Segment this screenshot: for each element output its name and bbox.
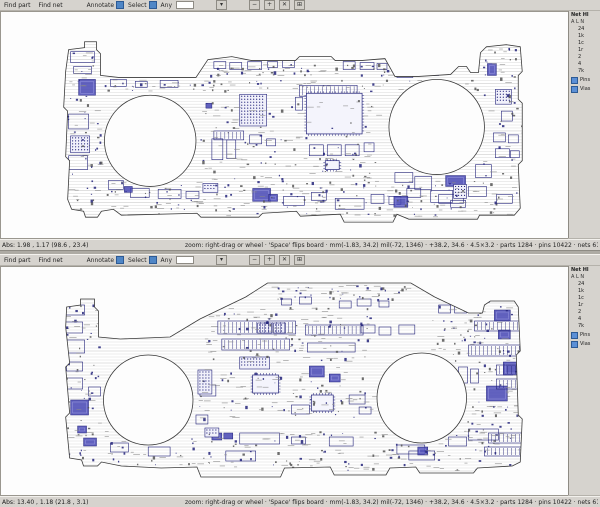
net-panel: Net Hl A L N 24 1k 1c 1r 2 4 7k Pins Via… (568, 11, 600, 239)
net-count: 24 (571, 26, 599, 33)
net-count: 1c (571, 40, 599, 47)
pins-label: Pins (580, 332, 590, 339)
pins-checkbox[interactable] (571, 77, 578, 84)
pins-toggle-row[interactable]: Pins (571, 77, 599, 84)
pins-toggle-row[interactable]: Pins (571, 332, 599, 339)
net-count: 2 (571, 54, 599, 61)
annotate-checkbox[interactable] (116, 1, 124, 9)
net-count: 4 (571, 61, 599, 68)
net-count: 1r (571, 302, 599, 309)
net-count: 1r (571, 47, 599, 54)
cursor-position: Abs: 13.40 , 1.18 (21.8 , 3.1) (2, 499, 185, 506)
status-bar: Abs: 1.98 , 1.17 (98.6 , 23.4) zoom: rig… (0, 239, 600, 250)
select-label: Select (128, 2, 147, 9)
toolbar: Find part Find net Annotate Select Any ▾… (0, 0, 600, 11)
zoom-out-button[interactable]: − (249, 0, 260, 10)
any-label: Any (161, 2, 172, 9)
select-checkbox[interactable] (149, 256, 157, 264)
vias-checkbox[interactable] (571, 86, 578, 93)
pcb-board-top (1, 12, 568, 238)
vias-label: Vias (580, 86, 590, 93)
net-count: 1c (571, 295, 599, 302)
status-message: zoom: right-drag or wheel · 'Space' flip… (185, 499, 598, 506)
pcb-canvas-bottom[interactable] (0, 266, 568, 496)
layer-dropdown-button[interactable]: ▾ (216, 255, 227, 265)
find-part-button[interactable]: Find part (2, 2, 33, 9)
annotate-checkbox[interactable] (116, 256, 124, 264)
net-count: 7k (571, 68, 599, 75)
pcb-canvas-top[interactable] (0, 11, 568, 239)
net-count: 1k (571, 33, 599, 40)
net-count: 24 (571, 281, 599, 288)
vias-checkbox[interactable] (571, 341, 578, 348)
zoom-in-button[interactable]: + (264, 0, 275, 10)
fit-view-button[interactable]: ⊞ (294, 255, 305, 265)
find-part-button[interactable]: Find part (2, 257, 33, 264)
layer-dropdown-button[interactable]: ▾ (216, 0, 227, 10)
net-panel: Net Hl A L N 24 1k 1c 1r 2 4 7k Pins Via… (568, 266, 600, 496)
pins-checkbox[interactable] (571, 332, 578, 339)
annotate-label: Annotate (87, 257, 114, 264)
net-panel-title: Net Hl (571, 12, 599, 19)
vias-label: Vias (580, 341, 590, 348)
zoom-in-button[interactable]: + (264, 255, 275, 265)
zoom-out-button[interactable]: − (249, 255, 260, 265)
net-panel-title: Net Hl (571, 267, 599, 274)
pins-label: Pins (580, 77, 590, 84)
clear-button[interactable]: ✕ (279, 255, 290, 265)
status-message: zoom: right-drag or wheel · 'Space' flip… (185, 242, 598, 249)
net-panel-subtitle: A L N (571, 19, 599, 26)
cursor-position: Abs: 1.98 , 1.17 (98.6 , 23.4) (2, 242, 185, 249)
net-count: 2 (571, 309, 599, 316)
pcb-board-bottom (1, 267, 568, 495)
net-count: 7k (571, 323, 599, 330)
vias-toggle-row[interactable]: Vias (571, 341, 599, 348)
net-count: 1k (571, 288, 599, 295)
net-panel-subtitle: A L N (571, 274, 599, 281)
find-net-button[interactable]: Find net (37, 257, 65, 264)
select-checkbox[interactable] (149, 1, 157, 9)
filter-input[interactable] (176, 1, 194, 9)
board-viewer-bottom: Find part Find net Annotate Select Any ▾… (0, 255, 600, 507)
net-count: 4 (571, 316, 599, 323)
select-label: Select (128, 257, 147, 264)
toolbar: Find part Find net Annotate Select Any ▾… (0, 255, 600, 266)
filter-input[interactable] (176, 256, 194, 264)
clear-button[interactable]: ✕ (279, 0, 290, 10)
status-bar: Abs: 13.40 , 1.18 (21.8 , 3.1) zoom: rig… (0, 496, 600, 507)
board-viewer-top: Find part Find net Annotate Select Any ▾… (0, 0, 600, 250)
annotate-label: Annotate (87, 2, 114, 9)
fit-view-button[interactable]: ⊞ (294, 0, 305, 10)
any-label: Any (161, 257, 172, 264)
vias-toggle-row[interactable]: Vias (571, 86, 599, 93)
find-net-button[interactable]: Find net (37, 2, 65, 9)
